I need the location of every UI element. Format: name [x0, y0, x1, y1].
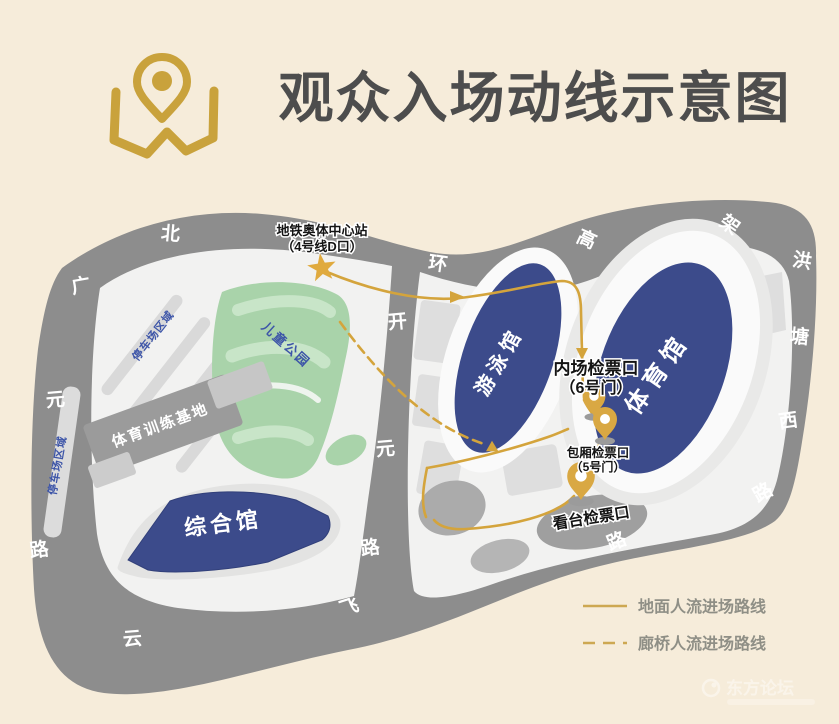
svg-text:元: 元: [45, 389, 66, 412]
legend: 地面人流进场路线 廊桥人流进场路线: [583, 597, 766, 653]
svg-text:云: 云: [122, 628, 143, 651]
svg-text:元: 元: [375, 438, 396, 461]
map-pin-logo-icon: [100, 40, 240, 175]
svg-text:塘: 塘: [789, 324, 810, 349]
svg-text:广: 广: [70, 273, 93, 299]
watermark-logo-dot: [712, 683, 717, 688]
watermark-text: 东方论坛: [726, 678, 794, 698]
metro-station-label: 地铁奥体中心站: [276, 223, 367, 238]
box-gate-number: （5号门）: [571, 459, 626, 474]
box-gate-label: 包厢检票口: [566, 445, 630, 460]
page-title: 观众入场动线示意图: [255, 68, 815, 129]
watermark-logo-icon: [703, 680, 719, 696]
svg-text:环: 环: [427, 253, 449, 276]
svg-text:洪: 洪: [791, 249, 814, 274]
metro-station-exit: （4号线D口）: [281, 239, 363, 254]
infield-gate-number: （6号门）: [560, 378, 633, 397]
legend-solid-label: 地面人流进场路线: [638, 597, 766, 616]
watermark: 东方论坛: [703, 678, 815, 705]
infield-gate-label: 内场检票口: [554, 358, 639, 378]
svg-text:西: 西: [777, 410, 799, 433]
svg-text:开: 开: [387, 311, 408, 334]
watermark-subline: [727, 699, 815, 705]
svg-text:北: 北: [160, 222, 181, 246]
legend-dashed-label: 廊桥人流进场路线: [638, 634, 766, 653]
